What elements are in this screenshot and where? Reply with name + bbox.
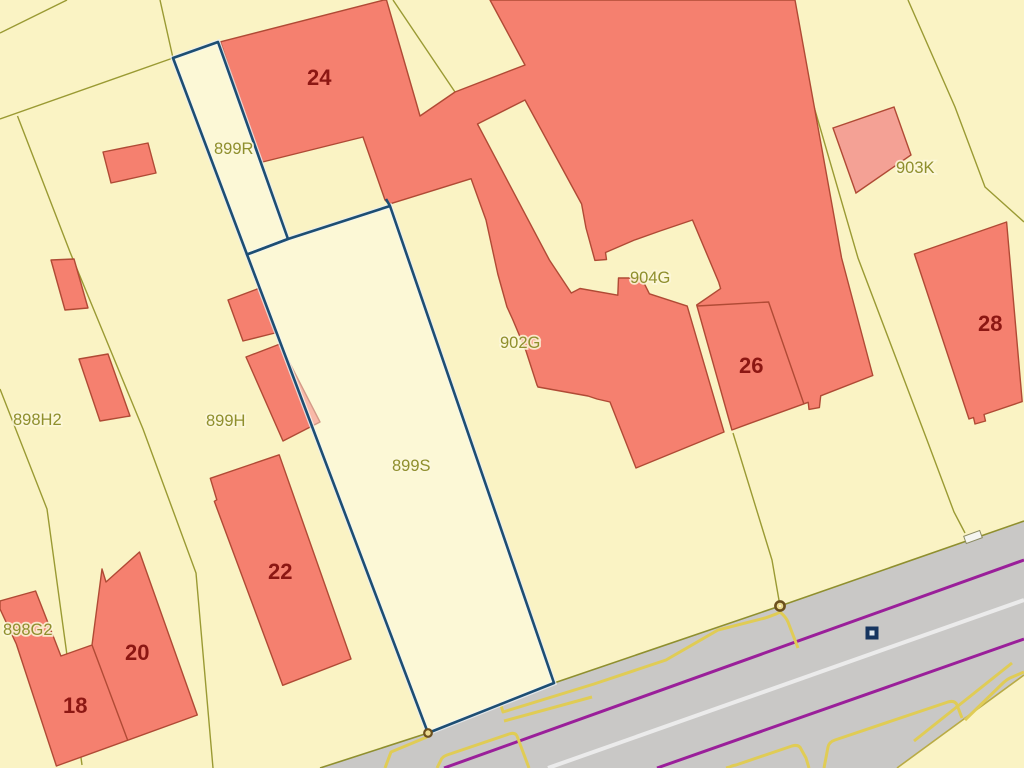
svg-text:18: 18: [63, 693, 87, 718]
svg-text:899S: 899S: [392, 457, 431, 475]
svg-text:899R: 899R: [214, 140, 254, 158]
svg-text:902G: 902G: [500, 334, 540, 352]
svg-text:20: 20: [125, 640, 149, 665]
svg-text:904G: 904G: [630, 269, 670, 287]
svg-text:903K: 903K: [896, 159, 935, 177]
svg-text:898H2: 898H2: [13, 411, 62, 429]
svg-text:28: 28: [978, 311, 1002, 336]
svg-text:898G2: 898G2: [3, 621, 53, 639]
svg-text:26: 26: [739, 353, 763, 378]
svg-text:22: 22: [268, 559, 292, 584]
svg-text:24: 24: [307, 65, 332, 90]
svg-text:899H: 899H: [206, 412, 245, 430]
